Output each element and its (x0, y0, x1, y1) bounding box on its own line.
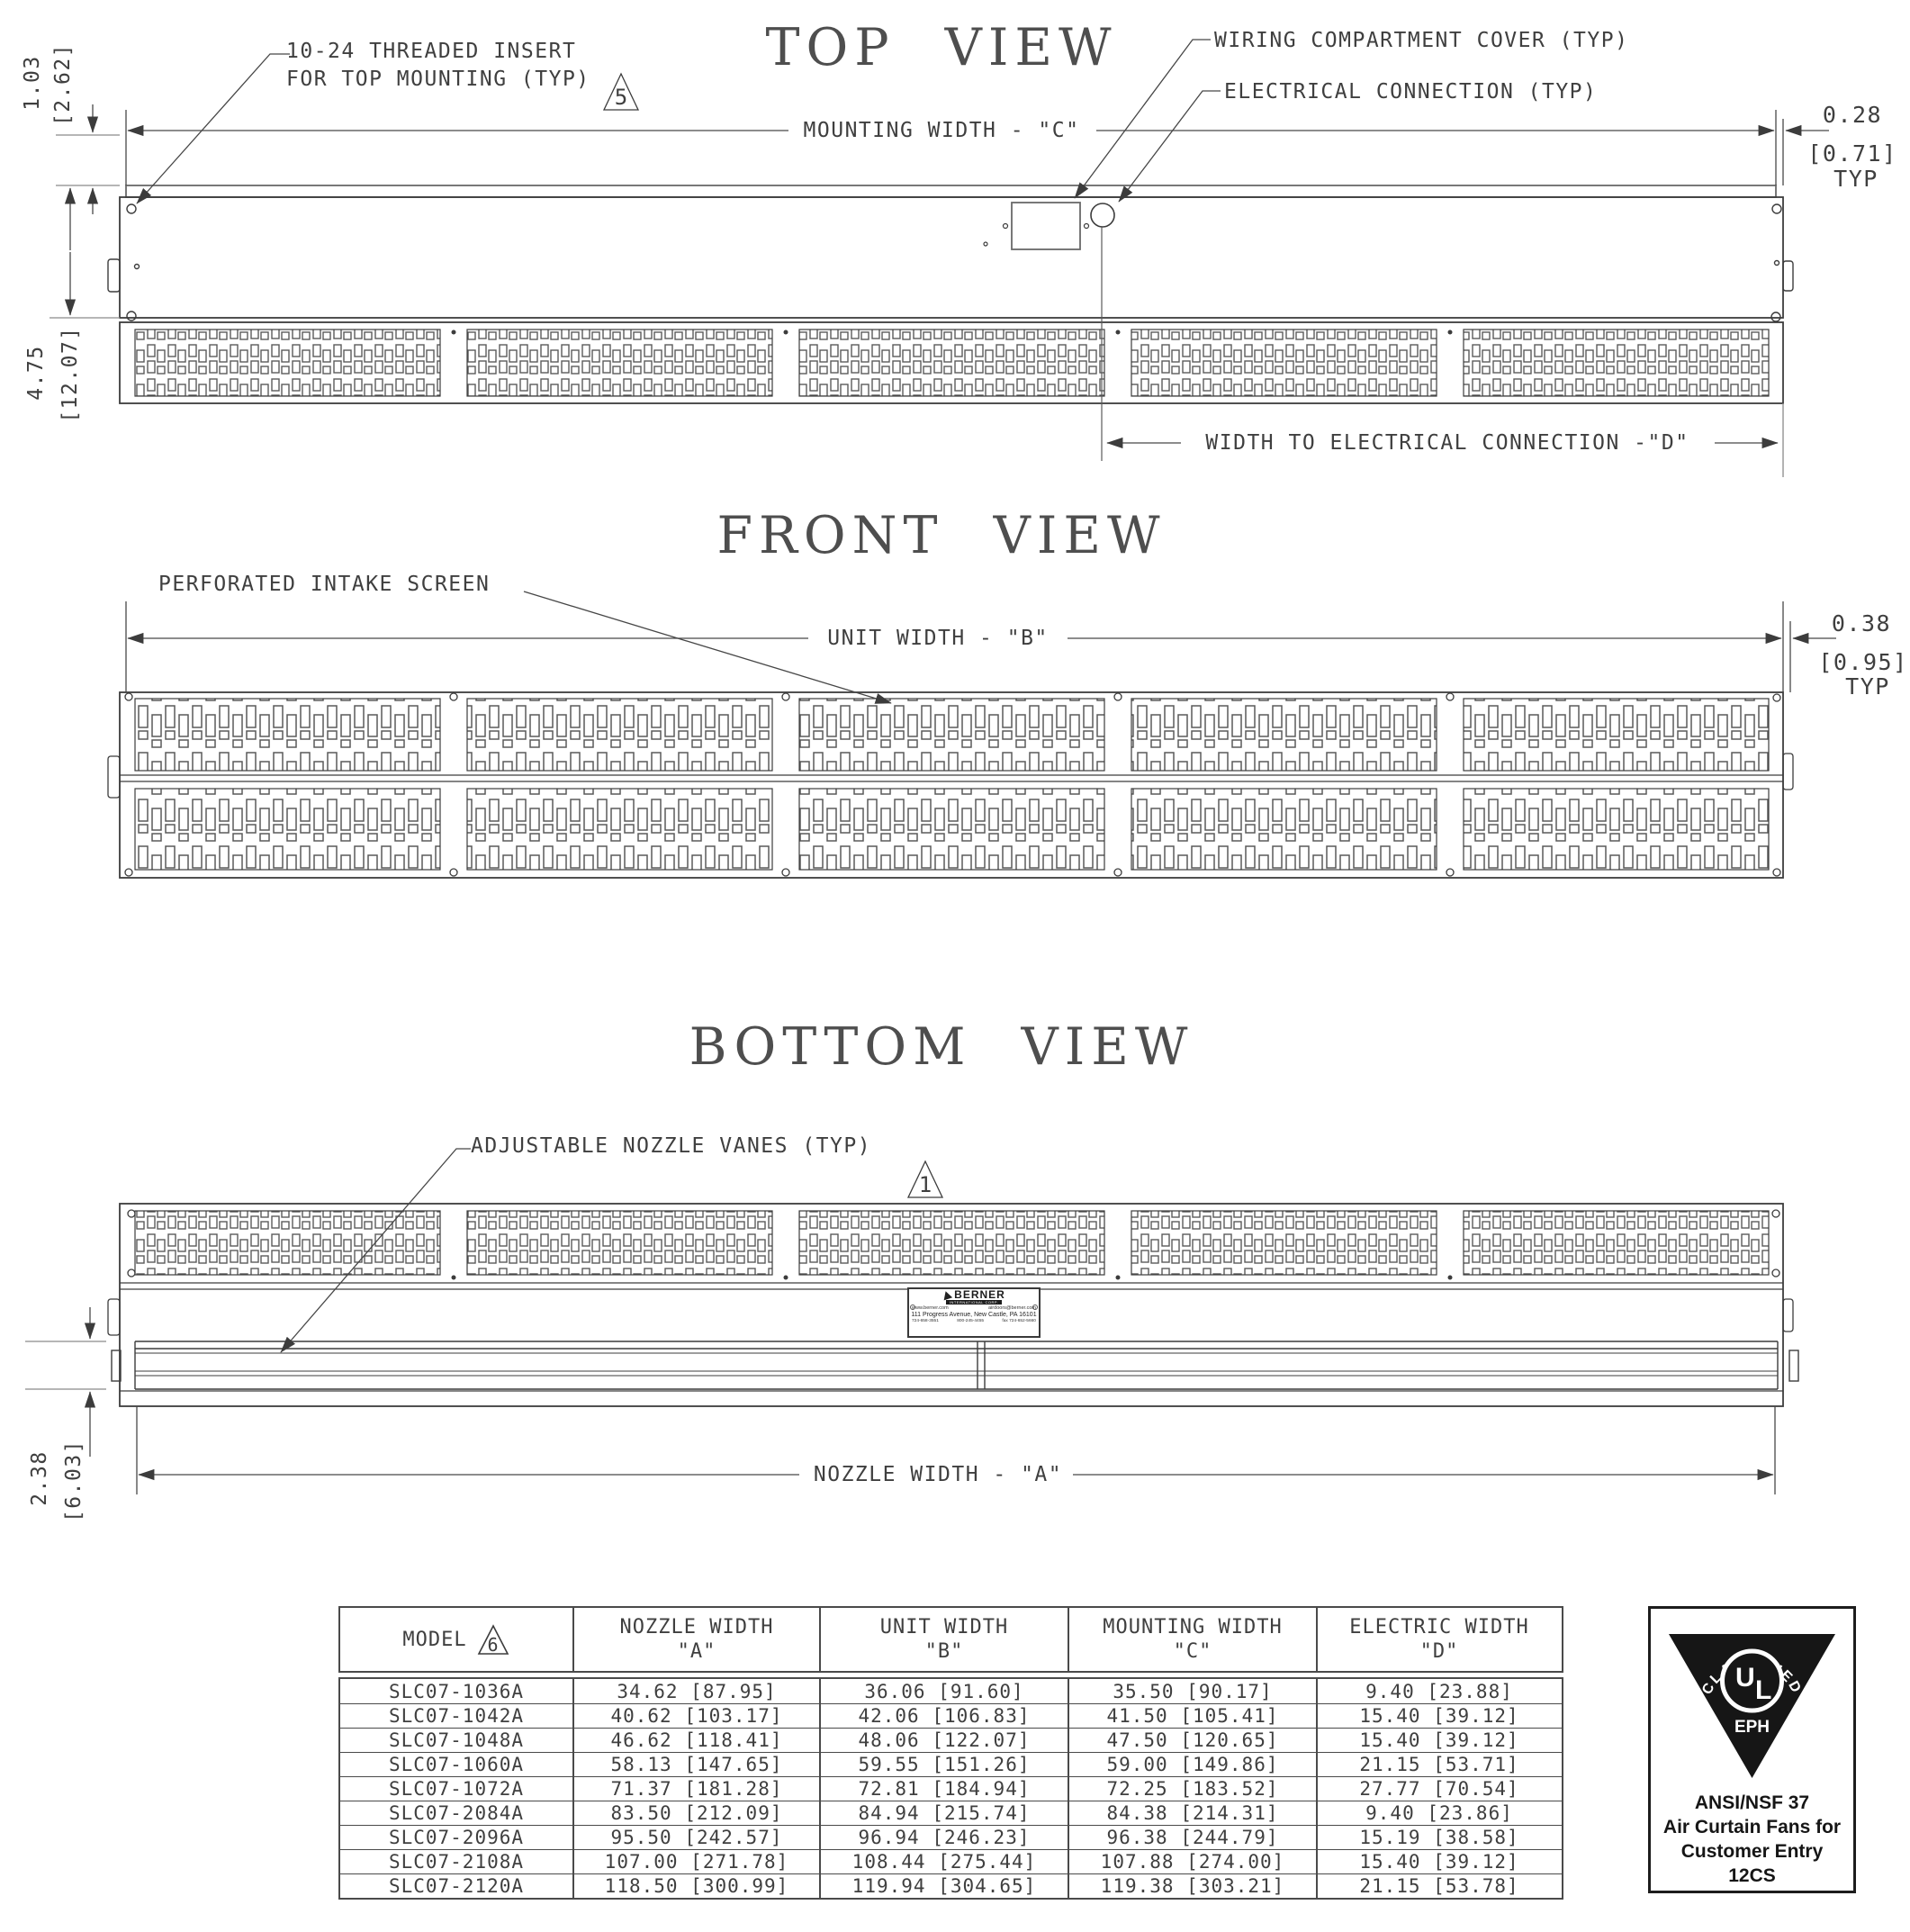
model-cell: SLC07-2120A (340, 1874, 572, 1898)
ul-line3: Customer Entry (1681, 1841, 1824, 1862)
dimension-cell: 59.55 [151.26] (819, 1753, 1068, 1776)
dimension-cell: 118.50 [300.99] (572, 1874, 819, 1898)
dim-262: [2.62] (51, 43, 75, 126)
dimension-cell: 21.15 [53.78] (1316, 1874, 1561, 1898)
dimension-cell: 47.50 [120.65] (1068, 1729, 1316, 1752)
nameplate-brand-sub: INTERNATIONAL CORP. (946, 1300, 1002, 1305)
dimension-cell: 41.50 [105.41] (1068, 1704, 1316, 1728)
nameplate-screw-left (910, 1305, 915, 1310)
dimension-cell: 119.38 [303.21] (1068, 1874, 1316, 1898)
dimension-cell: 42.06 [106.83] (819, 1704, 1068, 1728)
dimension-cell: 83.50 [212.09] (572, 1801, 819, 1825)
note-threaded-insert-line2: FOR TOP MOUNTING (TYP) (286, 68, 590, 91)
table-row: SLC07-2108A107.00 [271.78]108.44 [275.44… (340, 1849, 1562, 1873)
note-wiring-cover: WIRING COMPARTMENT COVER (TYP) (1214, 29, 1628, 52)
dim-unit-width-b: UNIT WIDTH - "B" (827, 627, 1049, 650)
table-row: SLC07-1042A40.62 [103.17]42.06 [106.83]4… (340, 1703, 1562, 1728)
ul-eph: EPH (1734, 1718, 1770, 1737)
manufacturer-nameplate: BERNER INTERNATIONAL CORP. www.berner.co… (907, 1287, 1041, 1338)
dimension-cell: 58.13 [147.65] (572, 1753, 819, 1776)
top-view-drawing (108, 185, 1793, 461)
table-row: SLC07-1036A34.62 [87.95]36.06 [91.60]35.… (340, 1679, 1562, 1703)
electrical-connection-knockout (1091, 203, 1114, 227)
dimension-cell: 119.94 [304.65] (819, 1874, 1068, 1898)
nameplate-website: www.berner.com (912, 1305, 949, 1311)
dim-typ-front: TYP (1845, 673, 1890, 700)
dim-028: 0.28 (1823, 102, 1882, 128)
top-view-dimensions (50, 40, 1829, 477)
table-header-mounting-width: MOUNTING WIDTH"C" (1068, 1608, 1316, 1671)
dim-mounting-width-c: MOUNTING WIDTH - "C" (804, 119, 1080, 142)
nameplate-fax: fax 724-652-5660 (1002, 1319, 1036, 1323)
ul-mark-u: U (1735, 1663, 1755, 1693)
top-screws (108, 204, 1793, 321)
dim-typ-top: TYP (1833, 166, 1878, 192)
dimension-cell: 84.38 [214.31] (1068, 1801, 1316, 1825)
bottom-view-dimensions (25, 1149, 1775, 1494)
dimension-cell: 15.40 [39.12] (1316, 1704, 1561, 1728)
ul-line4: 12CS (1728, 1865, 1776, 1886)
dimension-cell: 59.00 [149.86] (1068, 1753, 1316, 1776)
table-header-row: MODEL 6 NOZZLE WIDTH"A" UNIT WIDTH"B" MO… (338, 1606, 1563, 1673)
dimension-cell: 27.77 [70.54] (1316, 1777, 1561, 1801)
front-view-title: FRONT VIEW (716, 506, 1166, 565)
dim-nozzle-width-a: NOZZLE WIDTH - "A" (814, 1463, 1062, 1486)
dimension-cell: 48.06 [122.07] (819, 1729, 1068, 1752)
nameplate-address: 111 Progress Avenue, New Castle, PA 1610… (909, 1312, 1039, 1318)
dimension-cell: 107.00 [271.78] (572, 1850, 819, 1873)
wiring-compartment-cover (984, 203, 1089, 249)
dimension-cell: 34.62 [87.95] (572, 1679, 819, 1703)
nozzle-vanes (112, 1341, 1798, 1389)
table-header-model: MODEL 6 (340, 1608, 572, 1671)
svg-text:6: 6 (487, 1634, 499, 1656)
ul-line2: Air Curtain Fans for (1663, 1817, 1841, 1837)
model-cell: SLC07-1036A (340, 1679, 572, 1703)
model-cell: SLC07-2108A (340, 1850, 572, 1873)
ul-classified-badge: CLASSIFIED U L EPH ANSI/NSF 37 Air Curta… (1648, 1606, 1856, 1893)
berner-fan-logo-icon (941, 1290, 952, 1301)
dimension-cell: 40.62 [103.17] (572, 1704, 819, 1728)
dimension-cell: 84.94 [215.74] (819, 1801, 1068, 1825)
dimension-cell: 71.37 [181.28] (572, 1777, 819, 1801)
top-view-title: TOP VIEW (765, 18, 1117, 77)
dimension-cell: 21.15 [53.71] (1316, 1753, 1561, 1776)
table-header-electric-width: ELECTRIC WIDTH"D" (1316, 1608, 1561, 1671)
dim-475: 4.75 (24, 345, 48, 400)
dimension-cell: 95.50 [242.57] (572, 1826, 819, 1849)
dim-071: [0.71] (1807, 140, 1896, 167)
model-cell: SLC07-2096A (340, 1826, 572, 1849)
dimension-cell: 107.88 [274.00] (1068, 1850, 1316, 1873)
dimension-cell: 9.40 [23.86] (1316, 1801, 1561, 1825)
dim-095: [0.95] (1818, 649, 1907, 675)
dimension-cell: 46.62 [118.41] (572, 1729, 819, 1752)
note-threaded-insert-line1: 10-24 THREADED INSERT (286, 40, 576, 63)
nameplate-brand: BERNER (954, 1290, 1005, 1300)
note-perforated-intake-screen: PERFORATED INTAKE SCREEN (158, 573, 490, 596)
bottom-view-title: BOTTOM VIEW (689, 1017, 1194, 1077)
model-cell: SLC07-1072A (340, 1777, 572, 1801)
nameplate-email: airdoors@berner.com (988, 1305, 1036, 1311)
table-row: SLC07-1048A46.62 [118.41]48.06 [122.07]4… (340, 1728, 1562, 1752)
model-cell: SLC07-1042A (340, 1704, 572, 1728)
table-body: SLC07-1036A34.62 [87.95]36.06 [91.60]35.… (338, 1677, 1563, 1900)
dimension-cell: 35.50 [90.17] (1068, 1679, 1316, 1703)
ul-line1: ANSI/NSF 37 (1695, 1792, 1809, 1813)
model-cell: SLC07-2084A (340, 1801, 572, 1825)
ul-classified-icon: CLASSIFIED U L EPH ANSI/NSF 37 Air Curta… (1651, 1609, 1853, 1891)
model-cell: SLC07-1048A (340, 1729, 572, 1752)
table-row: SLC07-1072A71.37 [181.28]72.81 [184.94]7… (340, 1776, 1562, 1801)
table-row: SLC07-2120A118.50 [300.99]119.94 [304.65… (340, 1873, 1562, 1898)
dim-038: 0.38 (1832, 610, 1891, 636)
spec-sheet-page: { "top_view": { "title": "TOP VIEW", "no… (0, 0, 1910, 1932)
nameplate-phone2: 800-245-4455 (957, 1319, 984, 1323)
dim-103: 1.03 (21, 55, 44, 110)
flag-note-1: 1 (919, 1172, 932, 1197)
top-perforated-panels (135, 330, 1769, 396)
dimension-cell: 72.25 [183.52] (1068, 1777, 1316, 1801)
table-row: SLC07-2084A83.50 [212.09]84.94 [215.74]8… (340, 1801, 1562, 1825)
dimension-cell: 72.81 [184.94] (819, 1777, 1068, 1801)
dim-603: [6.03] (62, 1440, 86, 1522)
dimension-table: MODEL 6 NOZZLE WIDTH"A" UNIT WIDTH"B" MO… (338, 1606, 1563, 1900)
bottom-perforated-panels (135, 1211, 1769, 1280)
flag-note-6-icon: 6 (476, 1622, 510, 1657)
table-header-model-label: MODEL (402, 1629, 466, 1651)
dimension-cell: 96.94 [246.23] (819, 1826, 1068, 1849)
nameplate-screw-right (1032, 1305, 1038, 1310)
dim-1207: [12.07] (59, 326, 82, 422)
dimension-cell: 15.40 [39.12] (1316, 1850, 1561, 1873)
model-cell: SLC07-1060A (340, 1753, 572, 1776)
dimension-cell: 96.38 [244.79] (1068, 1826, 1316, 1849)
front-perforated-panels (135, 699, 1769, 870)
flag-note-5: 5 (615, 85, 627, 110)
dimension-cell: 15.19 [38.58] (1316, 1826, 1561, 1849)
table-header-unit-width: UNIT WIDTH"B" (819, 1608, 1068, 1671)
dim-238: 2.38 (28, 1450, 51, 1505)
dimension-cell: 108.44 [275.44] (819, 1850, 1068, 1873)
table-row: SLC07-2096A95.50 [242.57]96.94 [246.23]9… (340, 1825, 1562, 1849)
dimension-cell: 36.06 [91.60] (819, 1679, 1068, 1703)
note-adjustable-nozzle-vanes: ADJUSTABLE NOZZLE VANES (TYP) (471, 1134, 871, 1158)
front-view-drawing (108, 692, 1793, 878)
note-electrical-connection: ELECTRICAL CONNECTION (TYP) (1224, 80, 1597, 104)
dimension-cell: 15.40 [39.12] (1316, 1729, 1561, 1752)
table-header-nozzle-width: NOZZLE WIDTH"A" (572, 1608, 819, 1671)
dimension-cell: 9.40 [23.88] (1316, 1679, 1561, 1703)
table-row: SLC07-1060A58.13 [147.65]59.55 [151.26]5… (340, 1752, 1562, 1776)
ul-mark-l: L (1755, 1675, 1771, 1705)
dim-width-to-electrical-d: WIDTH TO ELECTRICAL CONNECTION -"D" (1205, 431, 1689, 455)
nameplate-phone: 724-658-3551 (912, 1319, 939, 1323)
